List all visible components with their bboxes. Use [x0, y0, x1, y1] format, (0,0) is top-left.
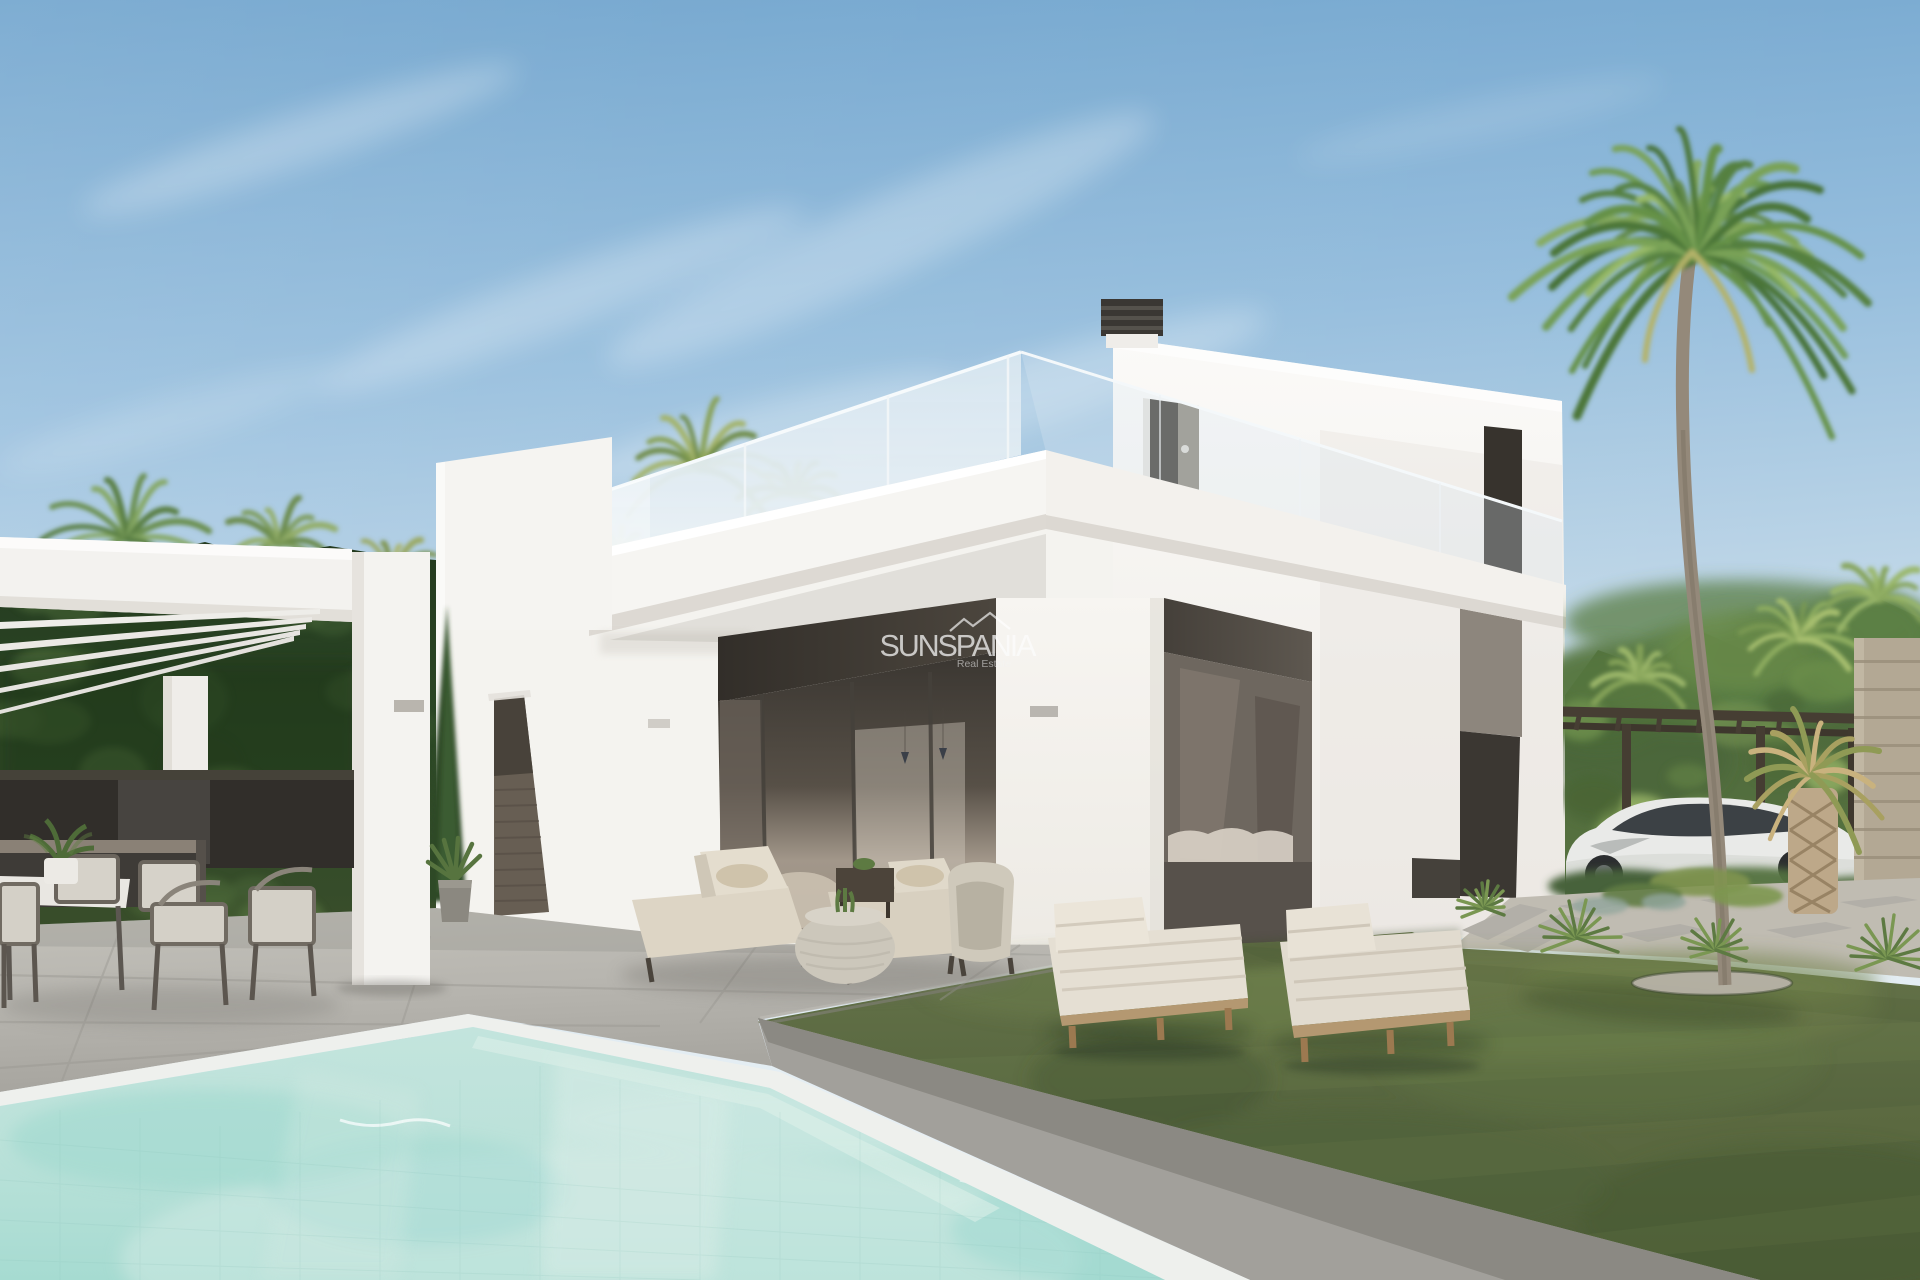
svg-text:Real Estate: Real Estate: [957, 658, 1011, 670]
